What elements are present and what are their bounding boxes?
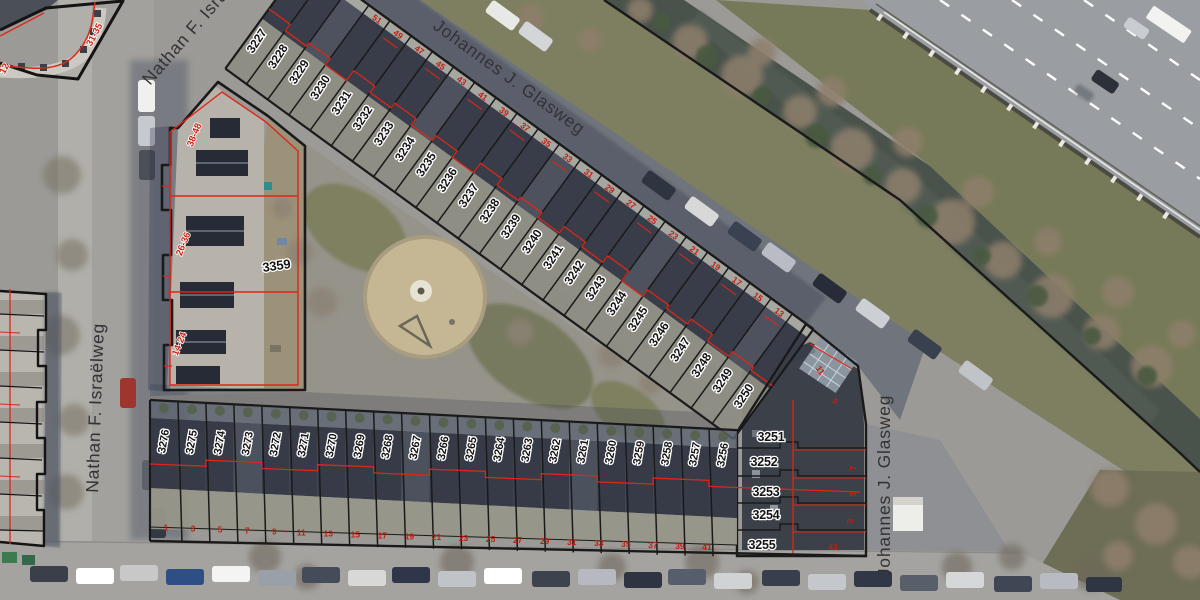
hedge (466, 419, 476, 429)
house-number: 35 (621, 539, 631, 549)
house-number: 3 (191, 523, 196, 533)
sidewalk-west (58, 0, 92, 600)
parcel-label: 3254 (752, 508, 779, 522)
house-number: 29 (540, 536, 550, 546)
house-number: 9 (272, 526, 277, 536)
parcel-label: 3253 (752, 485, 779, 499)
dumpster (22, 555, 35, 565)
hedge (383, 414, 393, 424)
house-number: 23 (459, 533, 469, 543)
house-number: 27 (513, 535, 523, 545)
house-number: 11 (297, 527, 306, 537)
house-number: 15 (351, 529, 361, 539)
house-number: 39 (675, 541, 685, 551)
house-number: 1 (164, 523, 169, 533)
parcel-label: 3251 (757, 430, 784, 444)
building-white (893, 497, 923, 531)
house-number: 5 (848, 491, 858, 496)
hedge (690, 430, 700, 440)
dumpster (2, 552, 17, 563)
house-number: 5 (218, 524, 223, 534)
house-number: 7 (848, 465, 858, 470)
street-label-johannes-right: Johannes J. Glasweg (874, 395, 894, 578)
house-number: 21 (432, 532, 442, 542)
house-number: 25 (486, 534, 496, 544)
hedge (411, 416, 421, 426)
hedge (355, 413, 365, 423)
hedge (634, 427, 644, 437)
map-viewport[interactable]: 3227322832293230513231493232473233453234… (0, 0, 1200, 600)
house-number: 17 (378, 530, 388, 540)
hedge (159, 403, 169, 413)
house-number: 7 (245, 525, 250, 535)
hedge (578, 425, 588, 435)
hedge (662, 429, 672, 439)
hedge (439, 417, 449, 427)
house-number: 3 (845, 518, 855, 523)
house-number: 41 (702, 542, 712, 552)
hedge (299, 410, 309, 420)
playground (365, 237, 485, 357)
hedge (606, 426, 616, 436)
hedge (271, 409, 281, 419)
house-number: 19 (405, 531, 415, 541)
hedge (327, 412, 337, 422)
hedge (550, 423, 560, 433)
hedge (243, 407, 253, 417)
house-number: 33 (594, 538, 604, 548)
parcel-label: 3255 (748, 538, 775, 552)
house-number: 37 (648, 540, 658, 550)
hedge (718, 432, 728, 442)
hedge (187, 404, 197, 414)
house-number: 13 (324, 528, 334, 538)
house-number: 31 (567, 537, 577, 547)
hedge (494, 420, 504, 430)
hedge (522, 422, 532, 432)
parcel-label: 3252 (750, 455, 777, 469)
hedge (215, 406, 225, 416)
aerial-map-canvas[interactable]: 3227322832293230513231493232473233453234… (0, 0, 1200, 600)
house-number: 43 (828, 542, 838, 552)
